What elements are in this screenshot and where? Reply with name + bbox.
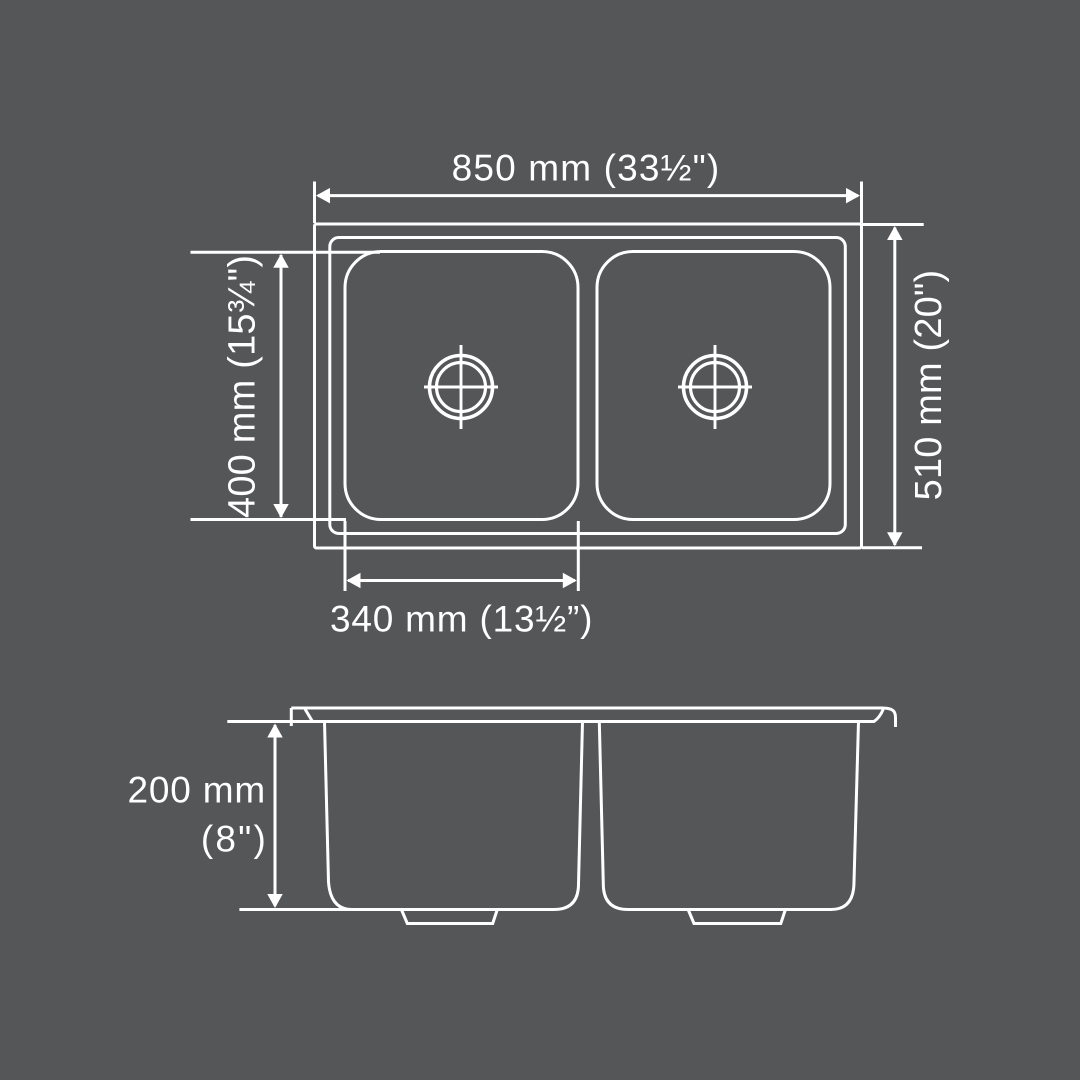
svg-text:400 mm (15¾"): 400 mm (15¾") <box>221 255 263 518</box>
svg-text:510 mm (20"): 510 mm (20") <box>908 270 950 501</box>
svg-text:(8"): (8") <box>201 818 268 859</box>
svg-text:200 mm: 200 mm <box>128 769 266 810</box>
svg-text:340 mm (13½”): 340 mm (13½”) <box>330 599 593 640</box>
svg-text:850 mm (33½"): 850 mm (33½") <box>452 147 721 188</box>
